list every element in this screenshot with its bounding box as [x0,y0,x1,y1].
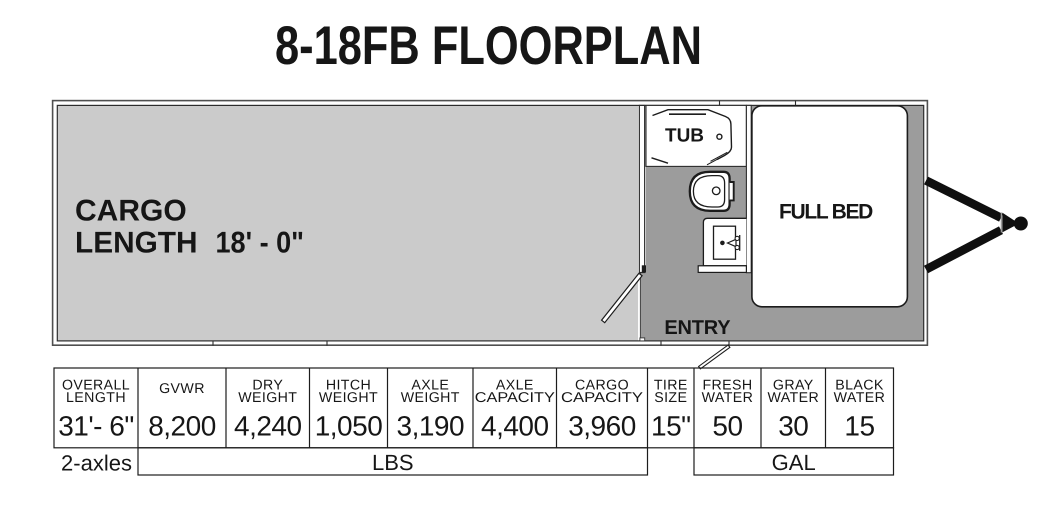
svg-text:4,400: 4,400 [481,410,549,441]
svg-text:18' - 0": 18' - 0" [216,226,305,259]
svg-text:WATER: WATER [702,390,754,406]
svg-text:WATER: WATER [767,390,819,406]
svg-text:50: 50 [712,410,742,441]
svg-text:GVWR: GVWR [159,381,205,397]
svg-text:8-18FB FLOORPLAN: 8-18FB FLOORPLAN [275,15,702,76]
svg-text:ENTRY: ENTRY [664,317,731,339]
svg-text:TUB: TUB [665,125,704,146]
svg-text:2-axles: 2-axles [61,450,132,475]
svg-text:15: 15 [844,410,874,441]
svg-text:FULL BED: FULL BED [779,200,873,223]
svg-text:8,200: 8,200 [148,410,216,441]
svg-text:CAPACITY: CAPACITY [561,390,644,406]
svg-text:LBS: LBS [372,450,414,475]
svg-text:3,960: 3,960 [568,410,636,441]
svg-text:4,240: 4,240 [234,410,302,441]
svg-text:CAPACITY: CAPACITY [475,390,556,406]
svg-text:31'- 6": 31'- 6" [58,410,134,441]
svg-text:30: 30 [778,410,808,441]
svg-text:CARGO: CARGO [75,194,187,227]
svg-text:WEIGHT: WEIGHT [238,390,297,406]
svg-text:SIZE: SIZE [654,390,687,406]
svg-text:WATER: WATER [834,390,886,406]
svg-text:15": 15" [651,410,691,441]
svg-text:LENGTH: LENGTH [75,226,198,259]
svg-text:3,190: 3,190 [397,410,465,441]
svg-text:LENGTH: LENGTH [66,390,126,406]
svg-text:WEIGHT: WEIGHT [401,390,460,406]
svg-text:WEIGHT: WEIGHT [319,390,378,406]
svg-text:GAL: GAL [772,450,816,475]
svg-text:1,050: 1,050 [315,410,383,441]
